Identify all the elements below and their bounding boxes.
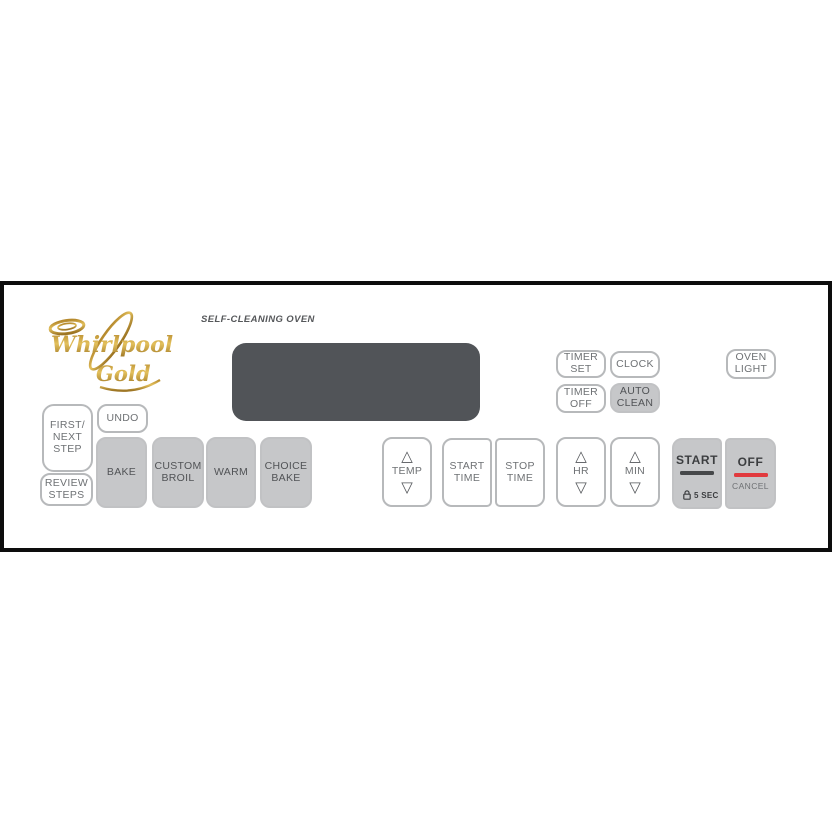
timer-set-label: TIMER SET [564,352,598,376]
timer-set-button[interactable]: TIMER SET [556,350,606,378]
undo-button[interactable]: UNDO [97,404,148,433]
hr-up-icon[interactable]: △ [575,449,587,464]
first-next-step-label: FIRST/ NEXT STEP [50,420,85,455]
brand-name: Whirlpool [51,332,173,358]
hr-down-icon[interactable]: ▽ [575,480,587,495]
start-hold-hint: 5 SEC [683,490,719,500]
temp-label: TEMP [392,466,422,478]
panel-title: SELF-CLEANING OVEN [201,314,315,325]
start-time-button[interactable]: START TIME [442,438,492,507]
min-button[interactable]: △ MIN ▽ [610,437,660,507]
bake-label: BAKE [107,467,136,479]
lock-icon [683,490,691,500]
oven-control-panel: Whirlpool Gold SELF-CLEANING OVEN TIMER … [0,0,832,832]
start-label: START [676,454,718,467]
min-up-icon[interactable]: △ [629,449,641,464]
timer-off-label: TIMER OFF [564,387,598,411]
auto-clean-label: AUTO CLEAN [617,386,654,410]
start-hold-label: 5 SEC [694,491,719,500]
start-underline [680,471,714,475]
off-label: OFF [738,456,764,469]
cancel-label: CANCEL [732,481,769,491]
oven-light-button[interactable]: OVEN LIGHT [726,349,776,379]
min-label: MIN [625,466,645,478]
custom-broil-label: CUSTOM BROIL [154,461,201,485]
logo-swirl-inner [58,322,77,330]
hr-label: HR [573,466,589,478]
temp-button[interactable]: △ TEMP ▽ [382,437,432,507]
review-steps-label: REVIEW STEPS [45,478,88,502]
min-down-icon[interactable]: ▽ [629,480,641,495]
stop-time-label: STOP TIME [505,461,535,485]
choice-bake-button[interactable]: CHOICE BAKE [260,437,312,508]
whirlpool-gold-logo: Whirlpool Gold [40,303,175,398]
choice-bake-label: CHOICE BAKE [265,461,308,485]
hr-button[interactable]: △ HR ▽ [556,437,606,507]
bake-button[interactable]: BAKE [96,437,147,508]
custom-broil-button[interactable]: CUSTOM BROIL [152,437,204,508]
warm-label: WARM [214,467,248,479]
stop-time-button[interactable]: STOP TIME [495,438,545,507]
warm-button[interactable]: WARM [206,437,256,508]
clock-label: CLOCK [616,359,654,371]
clock-button[interactable]: CLOCK [610,351,660,378]
timer-off-button[interactable]: TIMER OFF [556,384,606,413]
off-cancel-button[interactable]: OFF CANCEL [725,438,776,509]
off-underline [734,473,768,477]
temp-down-icon[interactable]: ▽ [401,480,413,495]
oven-light-label: OVEN LIGHT [735,352,767,376]
auto-clean-button[interactable]: AUTO CLEAN [610,383,660,413]
start-time-label: START TIME [450,461,485,485]
temp-up-icon[interactable]: △ [401,449,413,464]
start-button[interactable]: START 5 SEC [672,438,722,509]
undo-label: UNDO [106,413,138,425]
review-steps-button[interactable]: REVIEW STEPS [40,473,93,506]
display-screen [232,343,480,421]
first-next-step-button[interactable]: FIRST/ NEXT STEP [42,404,93,472]
brand-series: Gold [96,361,151,386]
